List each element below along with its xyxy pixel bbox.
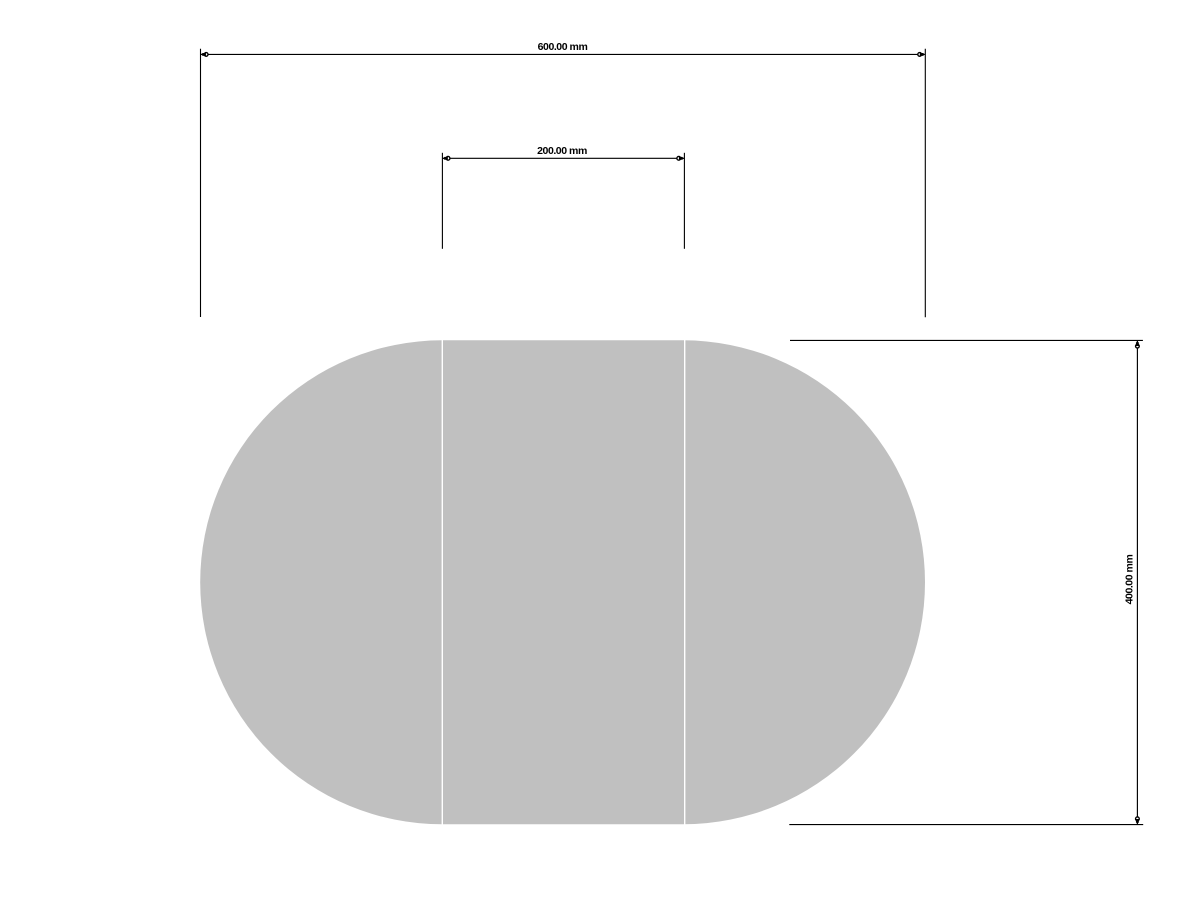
svg-text:400.00 mm: 400.00 mm — [1124, 555, 1136, 605]
svg-text:200.00 mm: 200.00 mm — [537, 145, 587, 157]
svg-text:600.00 mm: 600.00 mm — [538, 41, 588, 53]
